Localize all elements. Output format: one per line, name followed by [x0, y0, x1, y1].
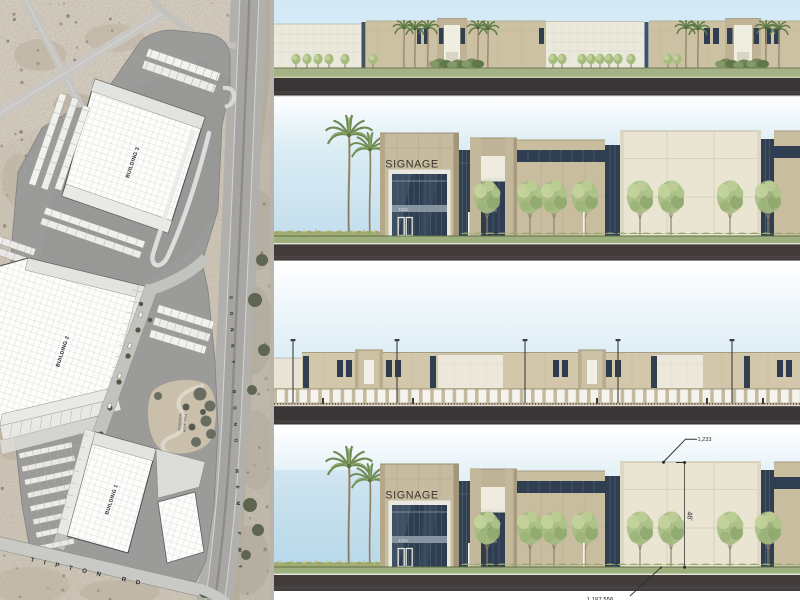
svg-text:1,233: 1,233: [698, 437, 712, 443]
svg-text:46': 46': [686, 511, 693, 520]
svg-text:1234: 1234: [398, 207, 408, 212]
svg-text:SIGNAGE: SIGNAGE: [385, 159, 438, 171]
